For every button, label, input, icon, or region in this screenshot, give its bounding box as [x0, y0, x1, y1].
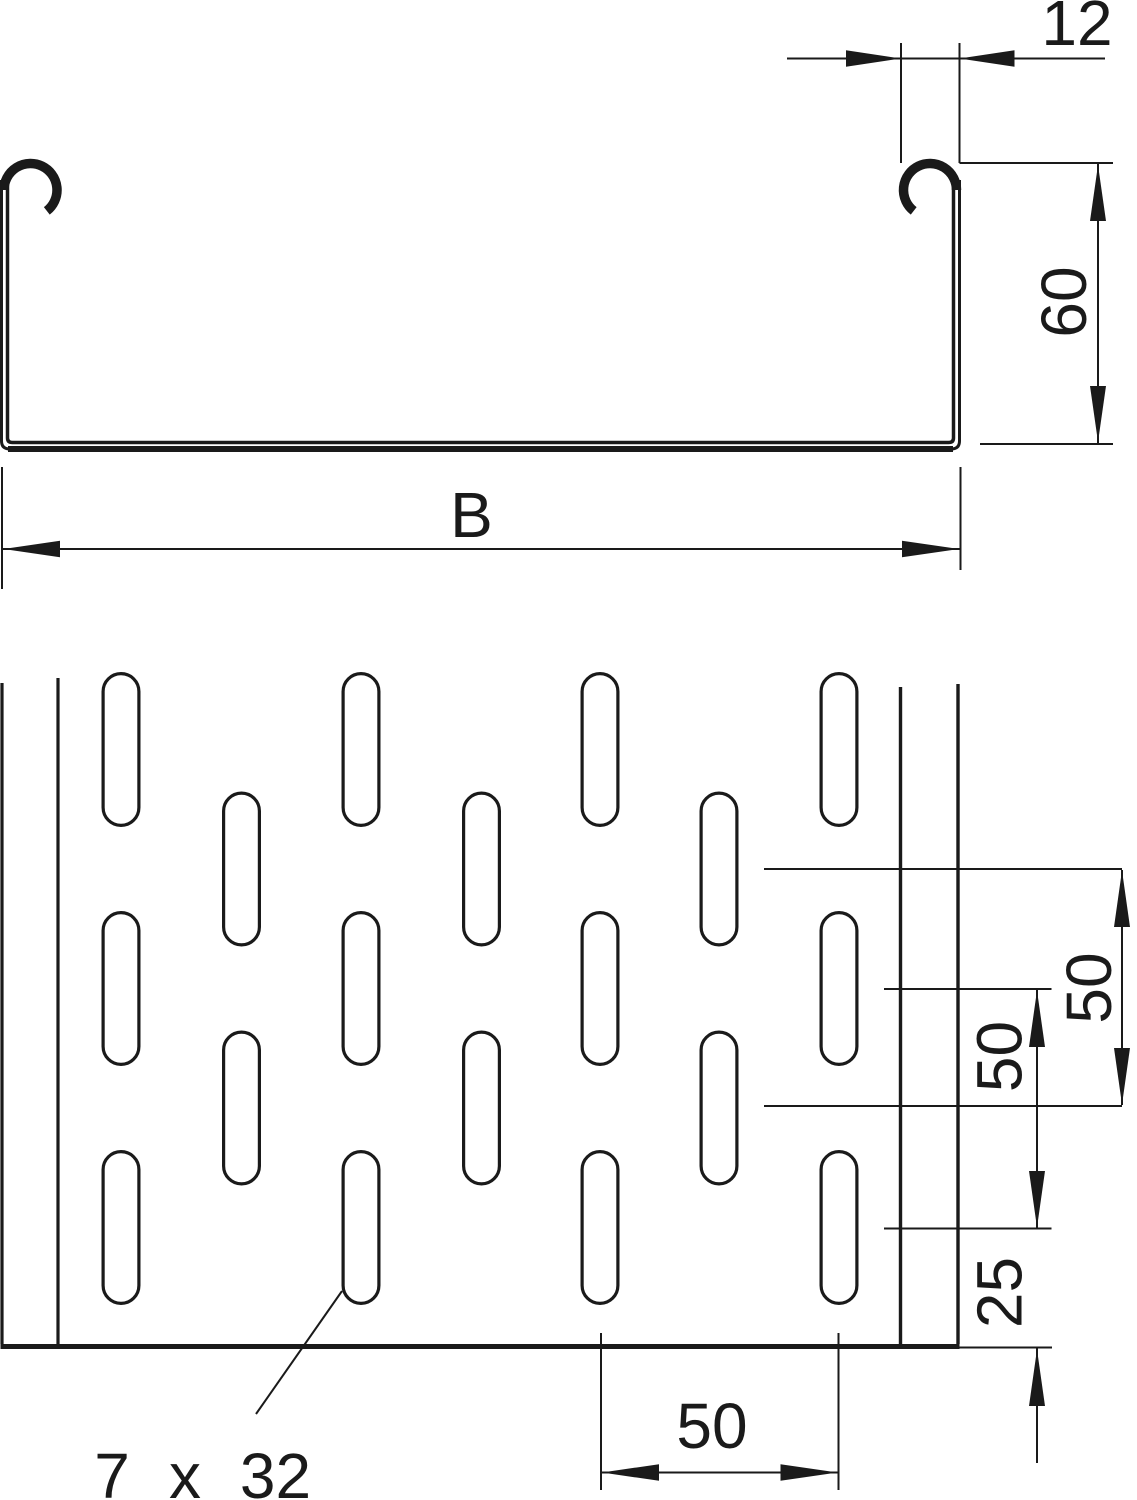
- svg-text:7: 7: [94, 1440, 130, 1500]
- svg-text:12: 12: [1041, 0, 1112, 59]
- svg-text:32: 32: [240, 1440, 311, 1500]
- svg-text:60: 60: [1028, 266, 1100, 337]
- svg-text:25: 25: [964, 1257, 1036, 1328]
- svg-text:x: x: [169, 1440, 201, 1500]
- svg-text:B: B: [450, 479, 493, 551]
- svg-text:50: 50: [964, 1021, 1036, 1092]
- svg-text:50: 50: [676, 1390, 747, 1462]
- svg-text:50: 50: [1053, 952, 1125, 1023]
